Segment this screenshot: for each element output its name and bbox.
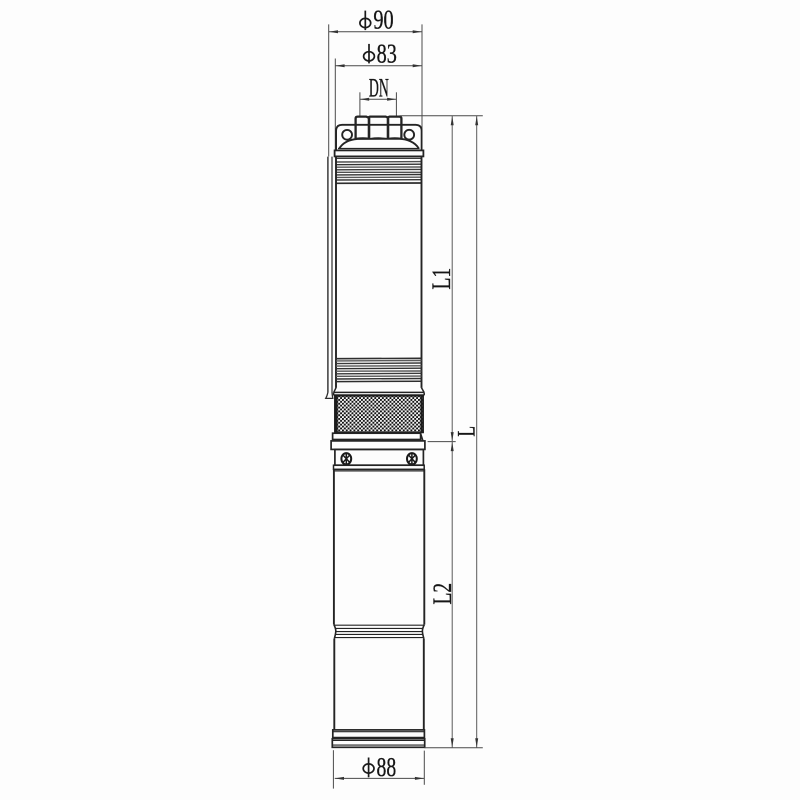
svg-text:L: L [452,426,480,437]
svg-text:L2: L2 [428,583,456,605]
svg-text:DN: DN [369,74,389,103]
svg-text:83: 83 [377,40,397,69]
svg-text:90: 90 [373,6,393,35]
svg-text:L1: L1 [427,268,455,290]
